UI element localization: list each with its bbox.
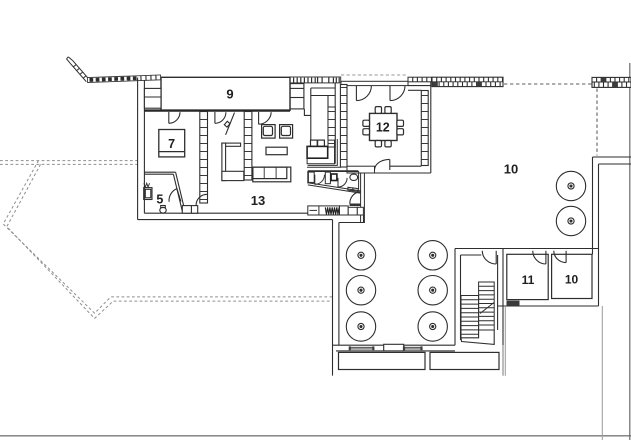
svg-text:10: 10 xyxy=(565,273,579,287)
svg-text:11: 11 xyxy=(522,273,535,287)
svg-text:12: 12 xyxy=(376,121,390,135)
svg-text:9: 9 xyxy=(226,87,233,102)
svg-text:5: 5 xyxy=(156,193,163,207)
svg-text:13: 13 xyxy=(251,193,265,208)
svg-text:10: 10 xyxy=(504,162,518,177)
svg-text:7: 7 xyxy=(168,137,175,151)
